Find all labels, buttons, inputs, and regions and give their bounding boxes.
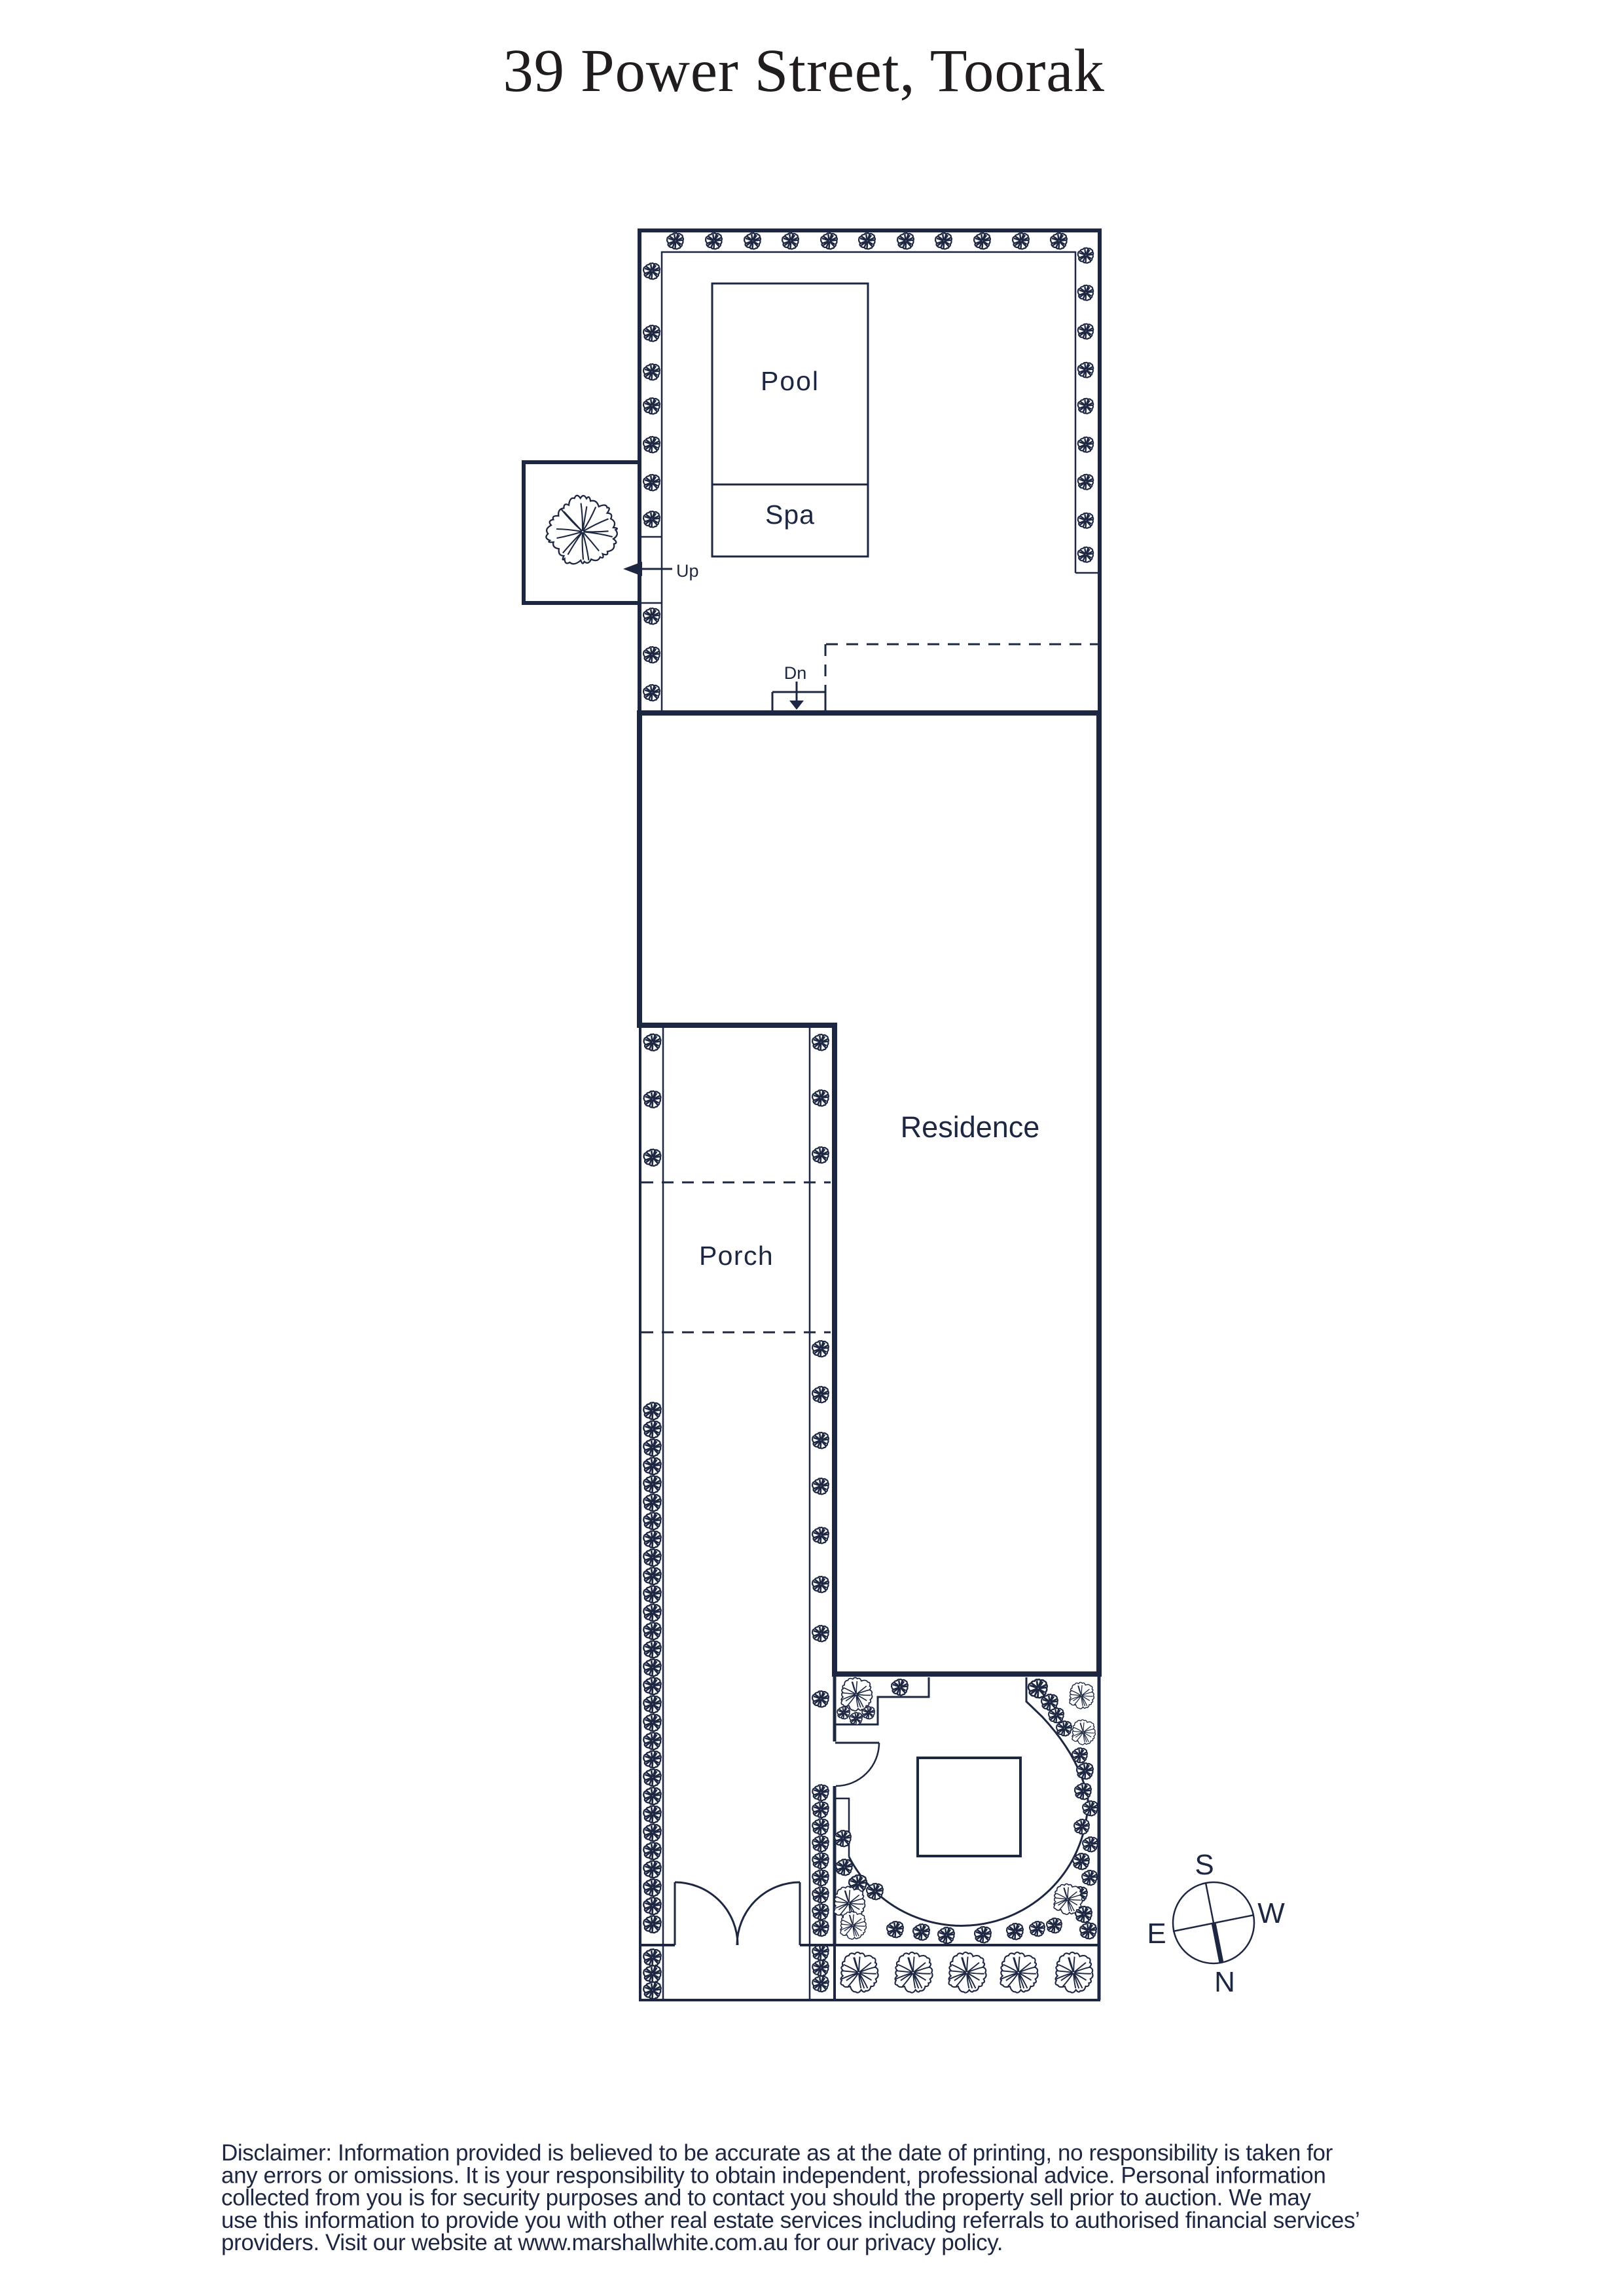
svg-text:Pool: Pool (761, 366, 820, 396)
svg-text:providers. Visit our website a: providers. Visit our website at www.mars… (221, 2230, 1003, 2255)
svg-text:Porch: Porch (699, 1241, 774, 1271)
svg-text:collected from you is for secu: collected from you is for security purpo… (221, 2185, 1311, 2211)
svg-text:Dn: Dn (784, 663, 807, 683)
svg-text:use this information to provid: use this information to provide you with… (221, 2208, 1360, 2233)
svg-text:Up: Up (676, 561, 699, 581)
svg-text:E: E (1147, 1918, 1166, 1950)
svg-text:N: N (1214, 1966, 1235, 1998)
svg-text:any errors or omissions. It is: any errors or omissions. It is your resp… (221, 2162, 1325, 2188)
svg-text:W: W (1257, 1897, 1285, 1929)
svg-text:S: S (1195, 1849, 1214, 1881)
svg-text:39 Power Street, Toorak: 39 Power Street, Toorak (503, 37, 1104, 105)
svg-text:Spa: Spa (765, 500, 815, 530)
svg-text:Residence: Residence (901, 1110, 1040, 1144)
svg-text:Disclaimer: Information provid: Disclaimer: Information provided is beli… (221, 2140, 1333, 2166)
